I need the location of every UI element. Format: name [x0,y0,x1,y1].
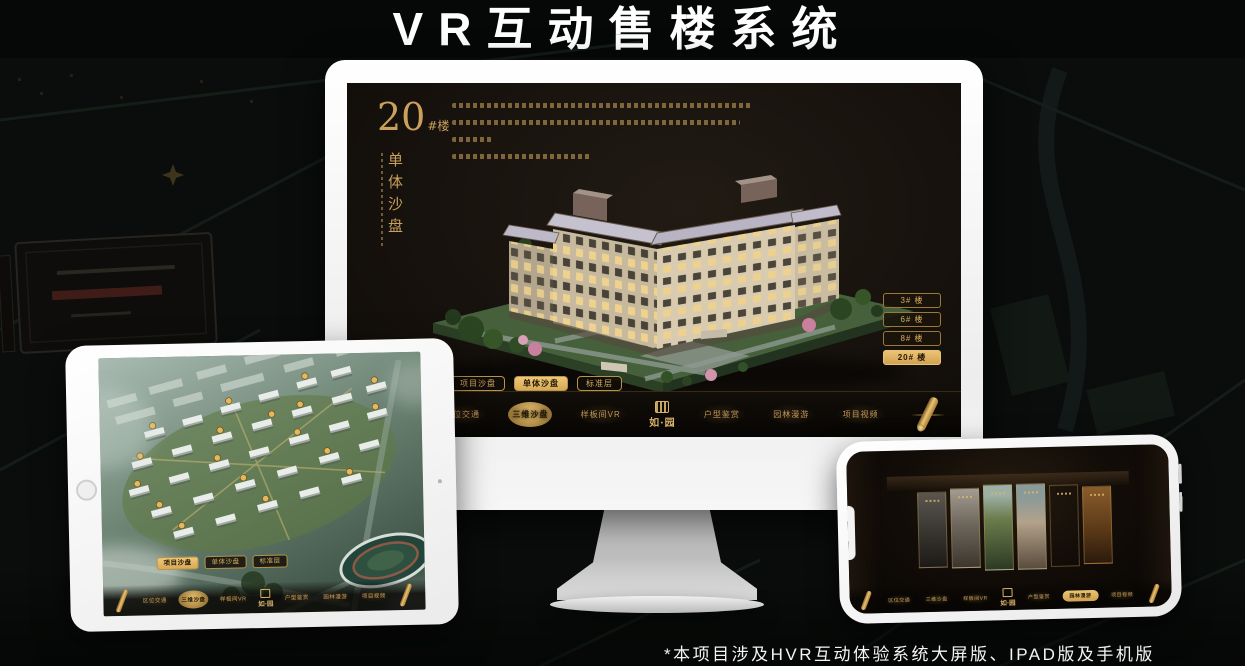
floor-button-6[interactable]: 6# 楼 [883,312,941,327]
preview-panel-garden[interactable] [983,484,1014,571]
tablet-nav-location[interactable]: 区位交通 [140,594,170,607]
sandbox-tab-row: 项目沙盘 单体沙盘 标准层 [451,376,622,391]
nav-item-3d-sandbox[interactable]: 三维沙盘 [508,402,552,427]
scroll-icon[interactable] [907,398,947,432]
nav-item-garden-roam[interactable]: 园林漫游 [768,405,814,424]
tab-single-building[interactable]: 单体沙盘 [514,376,568,391]
tablet-nav-bar: 区位交通 三维沙盘 样板间VR 如·园 户型鉴赏 园林漫游 项目视频 [103,580,426,617]
page-title: VR互动售楼系统 [0,0,1245,58]
tablet-tab-standard-floor[interactable]: 标准层 [252,554,287,568]
floor-button-3[interactable]: 3# 楼 [883,293,941,308]
floor-button-20[interactable]: 20# 楼 [883,350,941,365]
phone-device: 区位交通 三维沙盘 样板间VR 如·园 户型鉴赏 园林漫游 项目视频 [836,434,1182,624]
phone-nav-bar: 区位交通 三维沙盘 样板间VR 如·园 户型鉴赏 园林漫游 项目视频 [849,580,1172,614]
tablet-nav-project-video[interactable]: 项目视频 [359,589,389,602]
phone-nav-showroom-vr[interactable]: 样板间VR [960,592,991,604]
tablet-nav-3d-sandbox[interactable]: 三维沙盘 [178,590,208,609]
tablet-nav-unit-plans[interactable]: 户型鉴赏 [282,591,312,604]
brand-logo: 如·园 [649,401,675,429]
preview-panel-kitchen[interactable] [950,488,981,569]
scroll-icon-left[interactable] [857,590,875,610]
tablet-tab-project-sandbox[interactable]: 项目沙盘 [156,556,198,570]
seal-icon [655,401,669,413]
brand-logo: 如·园 [1000,587,1016,606]
phone-nav-project-video[interactable]: 项目视频 [1108,588,1136,600]
scroll-icon-left[interactable] [113,589,131,613]
brand-logo: 如·园 [258,588,274,607]
nav-item-project-video[interactable]: 项目视频 [838,405,884,424]
phone-notch [847,506,855,560]
camera-icon [438,479,442,483]
building-subtitle: 单体沙盘 [385,152,406,270]
scroll-icon-right[interactable] [397,583,415,607]
seal-icon [1003,587,1013,596]
floor-button-8[interactable]: 8# 楼 [883,331,941,346]
scroll-icon-right[interactable] [1145,583,1163,603]
preview-panel-building[interactable] [1016,483,1047,570]
phone-screen: 区位交通 三维沙盘 样板间VR 如·园 户型鉴赏 园林漫游 项目视频 [846,444,1172,614]
phone-nav-unit-plans[interactable]: 户型鉴赏 [1025,590,1053,602]
background-plaque [0,233,217,354]
tablet-nav-showroom-vr[interactable]: 样板间VR [217,592,250,605]
seal-icon [260,588,270,597]
subtitle-divider [381,153,383,249]
tab-project-sandbox[interactable]: 项目沙盘 [451,376,505,391]
floor-button-group: 3# 楼 6# 楼 8# 楼 20# 楼 [883,293,941,369]
home-button[interactable] [76,479,97,500]
building-3d-model[interactable] [405,141,925,396]
scene-panel-carousel [917,481,1113,572]
tablet-nav-garden-roam[interactable]: 园林漫游 [320,590,350,603]
monitor-base [550,596,764,613]
building-number: 20#楼 [377,97,449,146]
phone-nav-3d-sandbox[interactable]: 三维沙盘 [923,593,951,605]
poster: VR互动售楼系统 20#楼 单体沙盘 [0,0,1245,666]
preview-panel-cabinet[interactable] [1082,485,1113,564]
nav-item-showroom-vr[interactable]: 样板间VR [576,405,626,424]
aerial-masterplan[interactable] [98,352,425,617]
tab-standard-floor[interactable]: 标准层 [577,376,622,391]
preview-panel-interior[interactable] [917,492,948,569]
footnote: *本项目涉及HVR互动体验系统大屏版、IPAD版及手机版 [664,640,1155,665]
tablet-tab-single-building[interactable]: 单体沙盘 [204,555,246,569]
phone-nav-location[interactable]: 区位交通 [885,594,913,606]
tablet-screen: 项目沙盘 单体沙盘 标准层 区位交通 三维沙盘 样板间VR 如·园 户型鉴赏 园… [98,352,425,617]
tablet-tab-row: 项目沙盘 单体沙盘 标准层 [156,554,287,570]
preview-panel-autumn[interactable] [1049,484,1080,567]
nav-item-unit-plans[interactable]: 户型鉴赏 [699,405,745,424]
tablet-device: 项目沙盘 单体沙盘 标准层 区位交通 三维沙盘 样板间VR 如·园 户型鉴赏 园… [65,338,459,632]
phone-nav-garden-roam[interactable]: 园林漫游 [1062,589,1098,601]
